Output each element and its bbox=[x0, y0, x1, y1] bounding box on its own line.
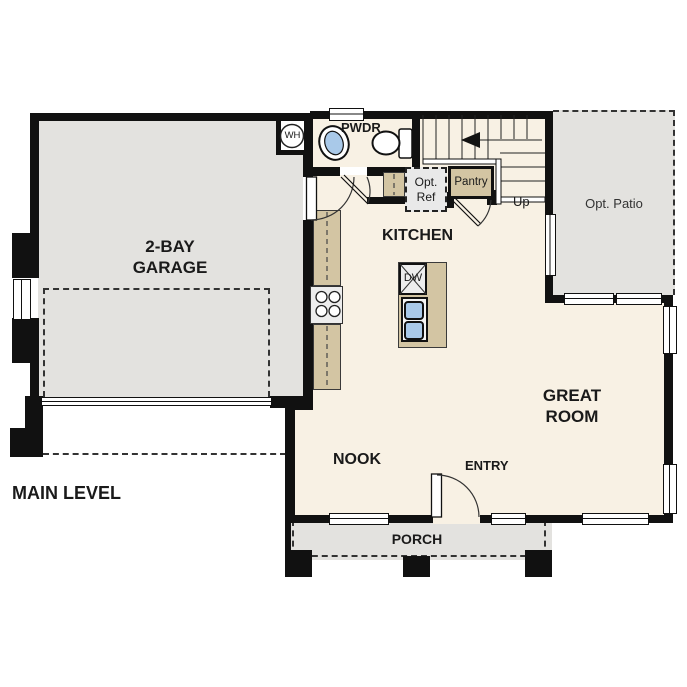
porch-label: PORCH bbox=[288, 531, 546, 549]
garage-door bbox=[42, 397, 271, 406]
island-sink-basin-1 bbox=[404, 301, 424, 320]
pantry-closet: Pantry bbox=[448, 166, 494, 199]
nook-floor-strip bbox=[295, 408, 313, 518]
wall-garage-left-lower bbox=[30, 318, 39, 398]
wall-garage-front-corner bbox=[25, 396, 43, 428]
wall-powder-right bbox=[412, 119, 420, 169]
opt-ref-label: Opt. Ref bbox=[415, 175, 438, 205]
wall-powder-bottom-a bbox=[313, 167, 340, 176]
kitchen-cabinet bbox=[383, 172, 405, 197]
window-entry-side bbox=[491, 513, 526, 525]
window-greatroom-right-1 bbox=[663, 306, 677, 354]
window-garage-left bbox=[13, 279, 31, 320]
nook-label: NOOK bbox=[333, 450, 381, 470]
wall-stair-right bbox=[545, 111, 553, 215]
great-room-label: GREAT ROOM bbox=[522, 385, 622, 428]
kitchen-label: KITCHEN bbox=[382, 226, 453, 246]
entry-opening bbox=[433, 512, 480, 524]
wall-garage-left-bump1 bbox=[12, 233, 39, 278]
dishwasher-label: DW bbox=[399, 272, 427, 286]
window-patio-slider-1 bbox=[564, 293, 614, 305]
island-sink-basin-2 bbox=[404, 321, 424, 340]
opt-refrigerator: Opt. Ref bbox=[405, 167, 447, 212]
window-greatroom-right-2 bbox=[663, 464, 677, 514]
entry-label: ENTRY bbox=[465, 458, 509, 474]
garage-parking-outline bbox=[43, 288, 270, 397]
powder-room-label: PWDR bbox=[341, 120, 381, 136]
wall-garage-top bbox=[30, 113, 310, 121]
driveway-line bbox=[43, 453, 286, 455]
kitchen-counter-lower bbox=[313, 324, 341, 390]
floor-plan: Pantry Opt. Ref bbox=[0, 0, 687, 687]
opt-patio-label: Opt. Patio bbox=[553, 196, 675, 212]
window-greatroom-front bbox=[582, 513, 649, 525]
level-title: MAIN LEVEL bbox=[12, 482, 121, 505]
water-heater-label: WH bbox=[281, 130, 304, 142]
porch-post-bottom-left bbox=[285, 550, 312, 577]
window-stair-patio bbox=[545, 214, 556, 276]
stairs-up-label: Up bbox=[513, 194, 530, 210]
wall-garage-right-upper bbox=[303, 119, 313, 177]
pantry-label: Pantry bbox=[454, 175, 487, 189]
kitchen-counter-upper bbox=[313, 210, 341, 286]
garage-label: 2-BAY GARAGE bbox=[105, 236, 235, 279]
porch-post-bottom-right bbox=[525, 550, 552, 577]
porch-post-middle bbox=[403, 556, 430, 577]
range-appliance bbox=[310, 286, 343, 324]
wall-garage-front-bump bbox=[10, 428, 43, 457]
window-nook-front bbox=[329, 513, 389, 525]
window-patio-slider-2 bbox=[616, 293, 662, 305]
wall-nook-left bbox=[285, 408, 295, 518]
